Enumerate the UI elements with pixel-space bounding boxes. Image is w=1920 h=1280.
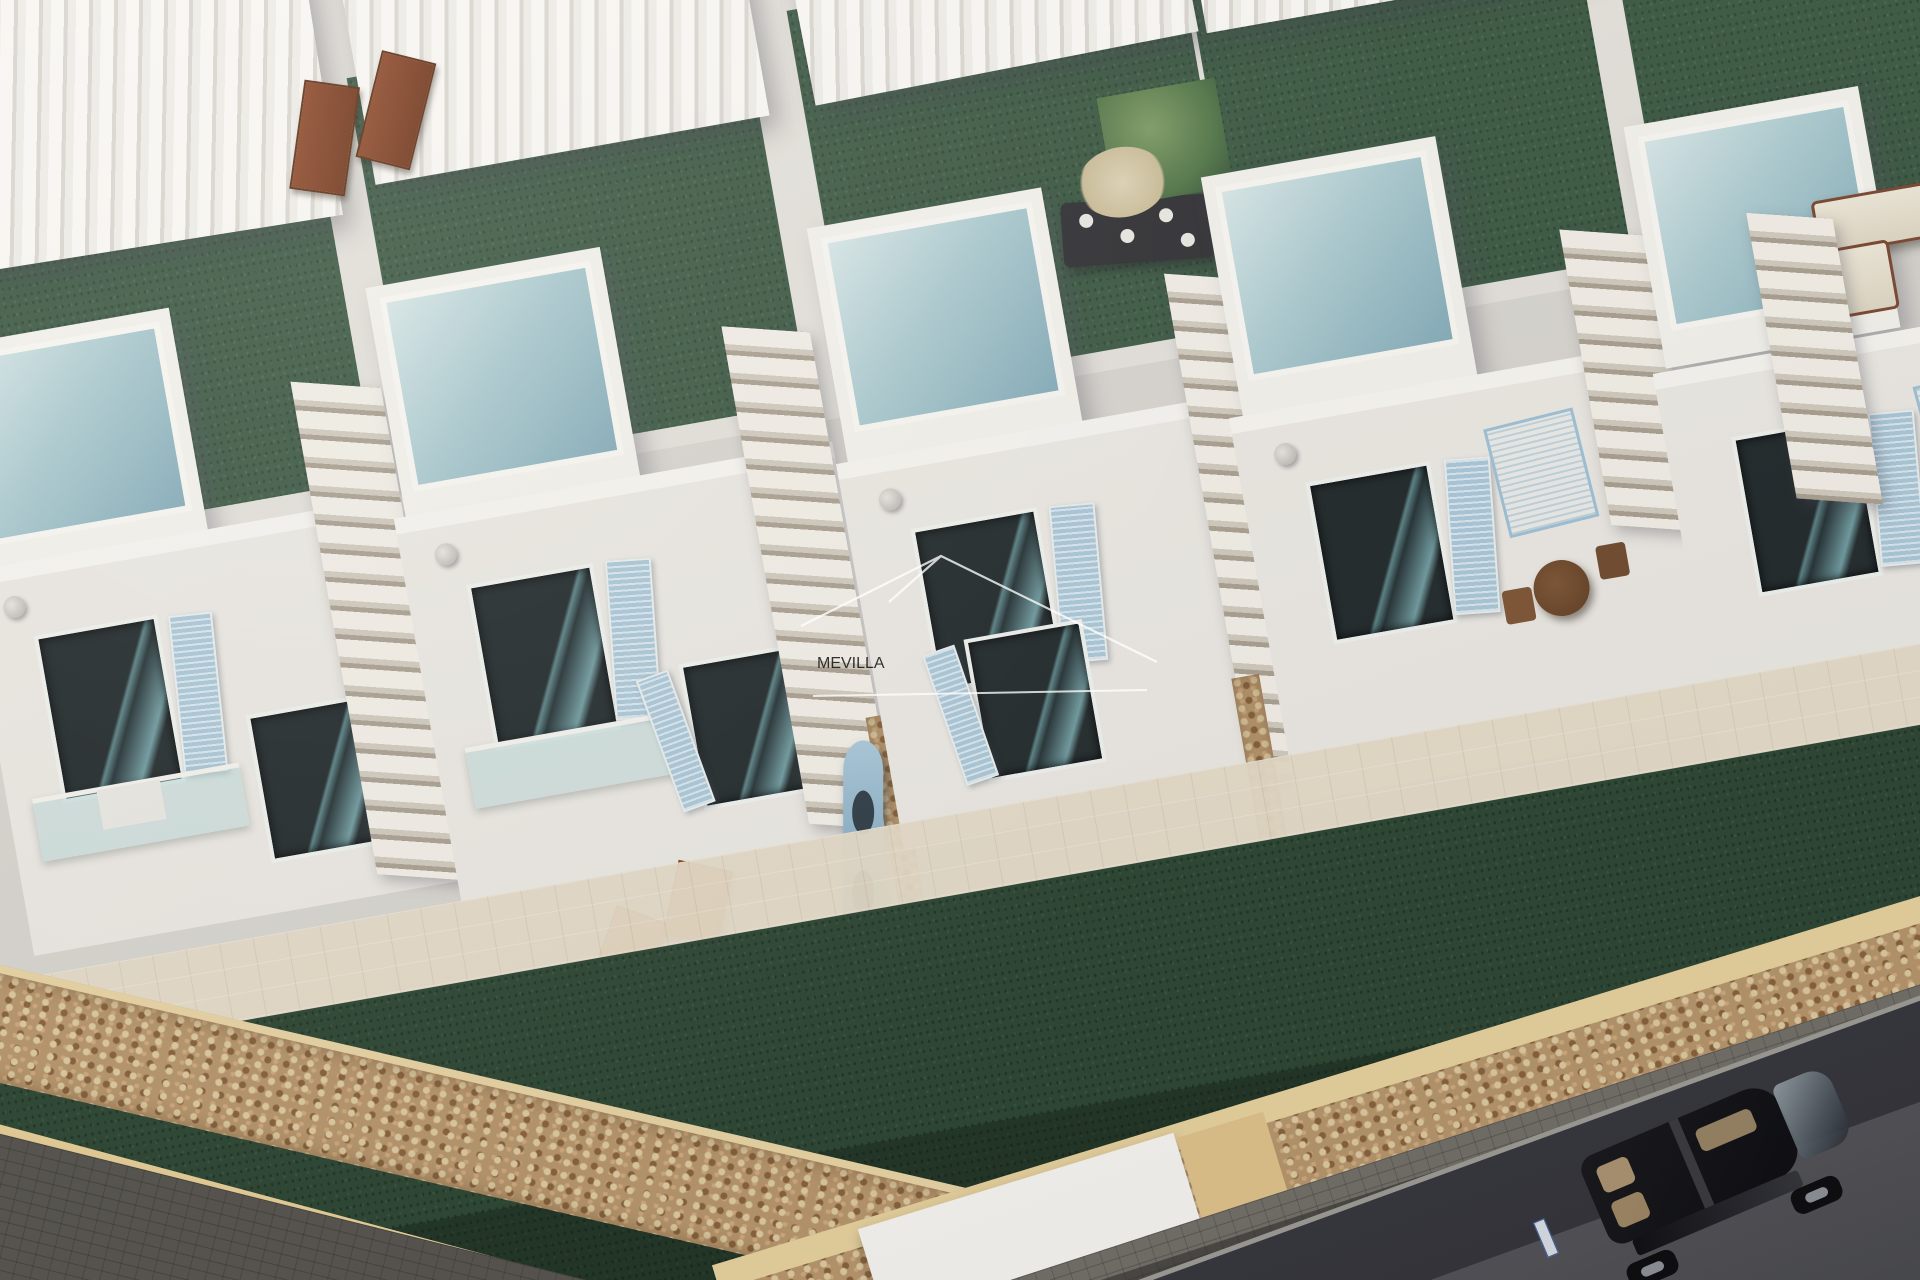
sedan-seats-tan bbox=[1694, 1107, 1759, 1153]
plate bbox=[1079, 213, 1094, 228]
plunge-pool bbox=[821, 201, 1066, 432]
watermark-logo: MEVILLA bbox=[795, 540, 1165, 720]
watermark-roofline bbox=[801, 556, 1157, 662]
plunge-pool bbox=[0, 322, 192, 548]
plate bbox=[1180, 232, 1195, 247]
plate bbox=[1159, 208, 1174, 223]
plunge-pool bbox=[379, 261, 624, 492]
render-canvas: 2 bbox=[0, 0, 1920, 1280]
plunge-pool bbox=[1215, 150, 1460, 381]
balcony-chair bbox=[1595, 541, 1630, 580]
watermark-underline bbox=[813, 690, 1147, 696]
balcony-chair bbox=[1501, 586, 1536, 625]
watermark-text: MEVILLA bbox=[817, 655, 885, 672]
sedan-seats-tan bbox=[1595, 1155, 1637, 1194]
sedan-seats-tan bbox=[1610, 1190, 1652, 1229]
plate bbox=[1120, 229, 1135, 244]
